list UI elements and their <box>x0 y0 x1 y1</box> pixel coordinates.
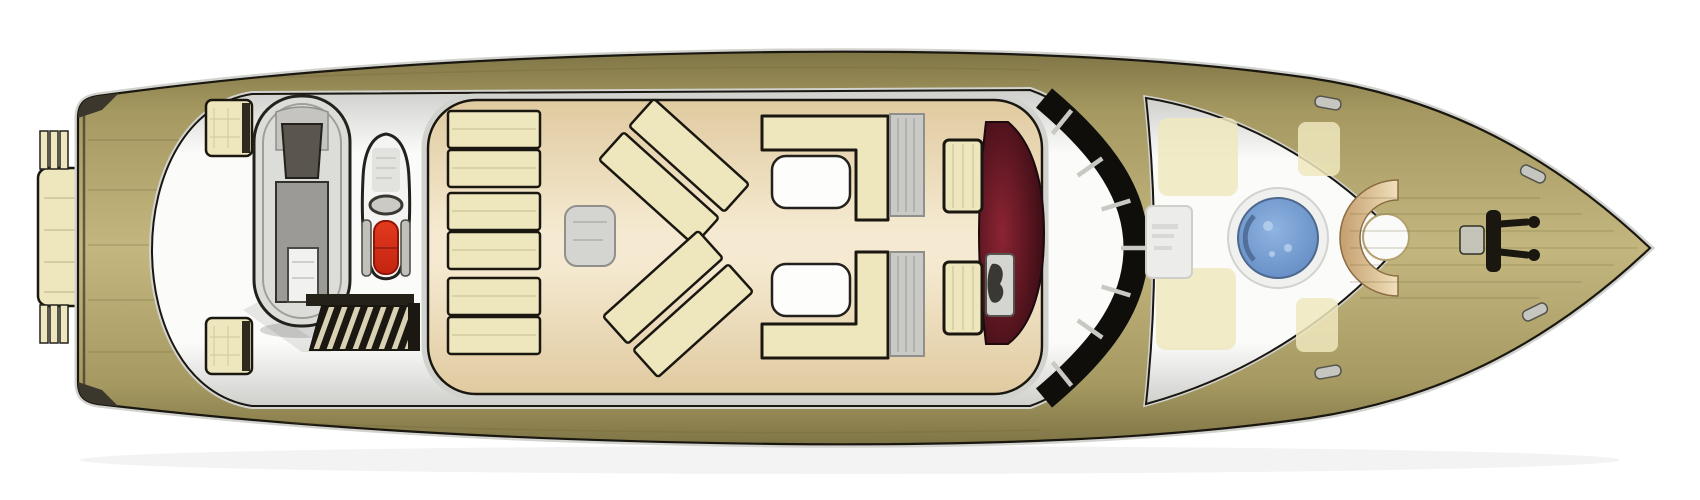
mooring-bitt <box>1528 249 1540 261</box>
stairs-side-rail <box>408 303 420 351</box>
bow-table <box>1363 214 1409 260</box>
walkway-grate <box>890 252 924 356</box>
storage-box <box>206 318 252 374</box>
windlass-drum <box>1486 210 1501 272</box>
tender-engine-box <box>288 248 318 302</box>
spa-pool-water <box>1238 198 1318 278</box>
jet-ski-console <box>372 148 400 192</box>
jet-ski <box>362 134 410 279</box>
foredeck-panel <box>1156 268 1236 350</box>
walkway-grate <box>890 114 924 216</box>
spa-pool <box>1228 188 1328 288</box>
jet-ski-handlebar <box>370 196 402 214</box>
pool-highlight <box>1284 244 1292 252</box>
sun-loungers <box>448 111 540 354</box>
foredeck-panel <box>1298 122 1340 176</box>
foredeck-panel <box>1296 298 1338 352</box>
foredeck-panel <box>1158 118 1238 196</box>
water-shadow <box>80 446 1620 474</box>
step-tread <box>50 131 58 169</box>
step-tread <box>60 131 68 169</box>
mooring-bitt <box>1528 216 1540 228</box>
transom-steps-top <box>40 131 68 169</box>
hatch-line <box>1154 246 1172 250</box>
storage-box <box>206 100 252 156</box>
side-table <box>565 206 615 266</box>
dinette-table <box>772 264 850 316</box>
jet-ski-footwell <box>362 220 371 276</box>
hatch-line <box>1152 234 1174 238</box>
companionway-stairs <box>300 294 430 358</box>
tender-windshield <box>282 124 322 178</box>
step-tread <box>40 131 48 169</box>
transom-steps-bottom <box>40 305 68 343</box>
pool-highlight <box>1269 251 1275 257</box>
grate-panel <box>890 114 924 216</box>
windlass-base <box>1460 226 1484 254</box>
storage-box-hinge <box>242 103 250 153</box>
step-tread <box>50 305 58 343</box>
hatch-line <box>1152 224 1178 229</box>
grate-panel <box>890 252 924 356</box>
step-tread <box>40 305 48 343</box>
jet-ski-footwell <box>401 220 410 276</box>
storage-box-hinge <box>242 321 250 371</box>
dinette-table <box>772 156 850 208</box>
step-tread <box>60 305 68 343</box>
deck-hatch <box>1146 206 1192 278</box>
stairs-top-edge <box>306 294 414 306</box>
yacht-deck-plan <box>0 0 1700 500</box>
pool-highlight <box>1263 221 1273 231</box>
